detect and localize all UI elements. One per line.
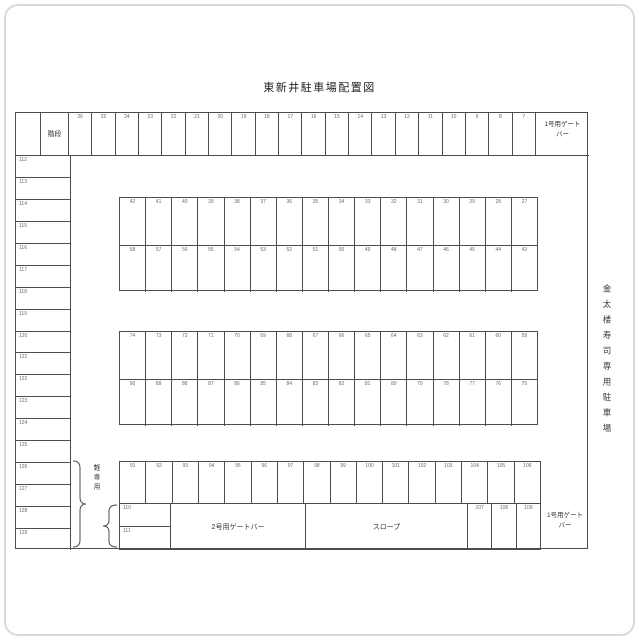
parking-space: 18 — [256, 113, 279, 155]
space-number: 75 — [522, 380, 528, 387]
parking-lot-diagram: 階段 2625242322212019181716151413121110987… — [15, 112, 588, 549]
parking-space: 33 — [355, 198, 381, 245]
parking-space: 38 — [225, 198, 251, 245]
parking-space: 127 — [16, 485, 70, 507]
parking-space: 88 — [172, 380, 198, 426]
parking-space: 47 — [407, 246, 433, 292]
parking-space: 36 — [277, 198, 303, 245]
parking-space: 93 — [173, 462, 199, 503]
parking-space: 24 — [116, 113, 139, 155]
parking-space: 37 — [251, 198, 277, 245]
gate-side-spaces: 107108109 — [468, 504, 541, 550]
parking-space: 10 — [443, 113, 466, 155]
parking-space: 29 — [460, 198, 486, 245]
space-number: 52 — [287, 246, 293, 253]
space-number: 113 — [16, 178, 27, 185]
parking-block-1: 42414039383736353433323130292827 5857565… — [119, 197, 538, 291]
parking-space: 103 — [436, 462, 462, 503]
space-number: 86 — [234, 380, 240, 387]
space-number: 127 — [16, 485, 27, 492]
space-number: 107 — [475, 504, 483, 511]
space-number: 77 — [469, 380, 475, 387]
parking-space: 9 — [466, 113, 489, 155]
parking-space: 76 — [486, 380, 512, 426]
space-number: 120 — [16, 332, 27, 339]
parking-space: 28 — [486, 198, 512, 245]
space-number: 124 — [16, 419, 27, 426]
parking-space: 80 — [381, 380, 407, 426]
space-number: 17 — [287, 113, 293, 120]
parking-space: 17 — [279, 113, 302, 155]
space-number: 61 — [469, 332, 475, 339]
space-number: 72 — [182, 332, 188, 339]
space-number: 10 — [451, 113, 457, 120]
parking-space: 86 — [225, 380, 251, 426]
parking-space: 55 — [198, 246, 224, 292]
parking-space: 122 — [16, 375, 70, 397]
space-number: 81 — [365, 380, 371, 387]
parking-space: 109 — [517, 504, 540, 549]
space-number: 59 — [522, 332, 528, 339]
parking-space: 78 — [434, 380, 460, 426]
parking-space: 129 — [16, 529, 70, 550]
parking-space: 70 — [225, 332, 251, 379]
space-number: 65 — [365, 332, 371, 339]
space-number: 45 — [469, 246, 475, 253]
page-title: 東新井駐車場配置図 — [0, 79, 639, 95]
gate2-cell: 2号用ゲートバー — [171, 504, 306, 550]
space-number: 114 — [16, 200, 27, 207]
parking-space: 64 — [381, 332, 407, 379]
space-number: 58 — [130, 246, 136, 253]
space-number: 42 — [130, 198, 136, 205]
space-number: 68 — [287, 332, 293, 339]
gate1-label-line1: 1号用ゲート — [544, 120, 580, 130]
space-number: 26 — [77, 113, 83, 120]
space-number: 16 — [311, 113, 317, 120]
parking-space: 54 — [225, 246, 251, 292]
parking-space: 71 — [198, 332, 224, 379]
parking-space: 32 — [381, 198, 407, 245]
parking-space: 125 — [16, 441, 70, 463]
space-number: 103 — [444, 462, 452, 469]
space-number: 116 — [16, 244, 27, 251]
parking-space: 119 — [16, 310, 70, 332]
parking-space: 39 — [198, 198, 224, 245]
space-number: 15 — [334, 113, 340, 120]
parking-space: 100 — [357, 462, 383, 503]
parking-space: 90 — [120, 380, 146, 426]
parking-space: 107 — [468, 504, 492, 549]
parking-space: 62 — [434, 332, 460, 379]
space-number: 12 — [404, 113, 410, 120]
parking-space: 11 — [419, 113, 442, 155]
space-number: 43 — [522, 246, 528, 253]
gate1-bottom-cell: 1号用ゲート バー — [541, 504, 589, 550]
parking-space: 56 — [172, 246, 198, 292]
space-number: 11 — [428, 113, 433, 120]
side-note: 金太楼寿司専用駐車場 — [601, 284, 613, 439]
parking-space: 96 — [252, 462, 278, 503]
space-number: 51 — [313, 246, 319, 253]
space-number: 30 — [443, 198, 449, 205]
parking-space: 97 — [278, 462, 304, 503]
space-number: 46 — [443, 246, 449, 253]
space-number: 110 — [120, 504, 131, 511]
gate1-label-line2: バー — [556, 130, 569, 140]
space-number: 105 — [497, 462, 505, 469]
space-number: 28 — [496, 198, 502, 205]
slope-cell: スロープ — [306, 504, 468, 550]
top-row-spaces: 2625242322212019181716151413121110987 — [69, 113, 536, 155]
parking-space: 121 — [16, 353, 70, 375]
space-number: 54 — [234, 246, 240, 253]
space-number: 83 — [313, 380, 319, 387]
space-number: 62 — [443, 332, 449, 339]
space-number: 33 — [365, 198, 371, 205]
parking-space: 16 — [302, 113, 325, 155]
space-number: 14 — [358, 113, 364, 120]
parking-space: 123 — [16, 397, 70, 419]
parking-space: 51 — [303, 246, 329, 292]
parking-space: 46 — [434, 246, 460, 292]
space-number: 64 — [391, 332, 397, 339]
space-number: 100 — [365, 462, 373, 469]
kei-group-bracket-left-column — [71, 459, 89, 549]
space-number: 104 — [471, 462, 479, 469]
space-number: 89 — [156, 380, 162, 387]
space-number: 112 — [16, 156, 27, 163]
space-number: 19 — [241, 113, 247, 120]
space-number: 76 — [496, 380, 502, 387]
parking-space: 102 — [409, 462, 435, 503]
space-number: 50 — [339, 246, 345, 253]
space-number: 79 — [417, 380, 423, 387]
parking-space: 115 — [16, 222, 70, 244]
parking-space: 117 — [16, 266, 70, 288]
parking-space: 89 — [146, 380, 172, 426]
space-number: 66 — [339, 332, 345, 339]
space-number: 69 — [260, 332, 266, 339]
space-number: 22 — [171, 113, 177, 120]
space-number: 88 — [182, 380, 188, 387]
parking-space: 35 — [303, 198, 329, 245]
space-number: 34 — [339, 198, 345, 205]
space-number: 73 — [156, 332, 162, 339]
space-number: 44 — [496, 246, 502, 253]
space-number: 29 — [469, 198, 475, 205]
space-number: 85 — [260, 380, 266, 387]
parking-space: 118 — [16, 288, 70, 310]
parking-space: 21 — [186, 113, 209, 155]
space-number: 57 — [156, 246, 162, 253]
parking-space: 48 — [381, 246, 407, 292]
space-number: 74 — [130, 332, 136, 339]
space-number: 9 — [476, 113, 479, 120]
parking-space: 106 — [515, 462, 540, 503]
space-number: 99 — [340, 462, 346, 469]
space-number: 13 — [381, 113, 387, 120]
parking-space: 69 — [251, 332, 277, 379]
space-number: 71 — [208, 332, 214, 339]
space-number: 93 — [183, 462, 189, 469]
gate1-label-line1: 1号用ゲート — [547, 511, 583, 521]
parking-space: 74 — [120, 332, 146, 379]
parking-space: 92 — [146, 462, 172, 503]
parking-space: 66 — [329, 332, 355, 379]
top-corner-cell — [16, 113, 41, 155]
parking-space: 30 — [434, 198, 460, 245]
space-number: 18 — [264, 113, 270, 120]
parking-space: 34 — [329, 198, 355, 245]
gate2-label: 2号用ゲートバー — [212, 522, 265, 532]
space-number: 27 — [522, 198, 528, 205]
parking-space: 94 — [199, 462, 225, 503]
parking-space: 98 — [304, 462, 330, 503]
space-number: 24 — [124, 113, 130, 120]
parking-space: 20 — [209, 113, 232, 155]
space-number: 60 — [496, 332, 502, 339]
space-number: 84 — [287, 380, 293, 387]
space-number: 25 — [101, 113, 107, 120]
space-number: 21 — [194, 113, 200, 120]
kei-only-label: 軽専用 — [90, 464, 100, 493]
space-number: 80 — [391, 380, 397, 387]
block1-row2: 58575655545352515049484746454443 — [120, 246, 537, 292]
space-number: 109 — [524, 504, 532, 511]
parking-space: 110 — [120, 504, 170, 527]
space-number: 121 — [16, 353, 27, 360]
space-number: 67 — [313, 332, 319, 339]
space-number: 78 — [443, 380, 449, 387]
space-number: 122 — [16, 375, 27, 382]
space-number: 96 — [261, 462, 267, 469]
space-number: 37 — [260, 198, 266, 205]
space-number: 40 — [182, 198, 188, 205]
space-number: 36 — [287, 198, 293, 205]
stairs-label: 階段 — [48, 129, 62, 139]
space-number: 129 — [16, 529, 27, 536]
parking-space: 77 — [460, 380, 486, 426]
parking-space: 23 — [139, 113, 162, 155]
parking-space: 75 — [512, 380, 537, 426]
parking-space: 105 — [488, 462, 514, 503]
space-number: 32 — [391, 198, 397, 205]
parking-space: 31 — [407, 198, 433, 245]
parking-space: 50 — [329, 246, 355, 292]
space-number: 123 — [16, 397, 27, 404]
parking-space: 68 — [277, 332, 303, 379]
space-number: 31 — [417, 198, 423, 205]
parking-space: 41 — [146, 198, 172, 245]
parking-space: 82 — [329, 380, 355, 426]
parking-space: 126 — [16, 463, 70, 485]
space-number: 98 — [314, 462, 320, 469]
parking-space: 128 — [16, 507, 70, 529]
space-number: 70 — [234, 332, 240, 339]
parking-space: 13 — [372, 113, 395, 155]
space-number: 35 — [313, 198, 319, 205]
space-number: 111 — [120, 527, 131, 534]
parking-space: 22 — [162, 113, 185, 155]
space-number: 55 — [208, 246, 214, 253]
space-number: 38 — [234, 198, 240, 205]
parking-space: 108 — [492, 504, 516, 549]
parking-space: 25 — [92, 113, 115, 155]
parking-space: 45 — [460, 246, 486, 292]
parking-space: 79 — [407, 380, 433, 426]
space-number: 53 — [260, 246, 266, 253]
space-number: 97 — [288, 462, 294, 469]
space-number: 23 — [147, 113, 153, 120]
space-number: 41 — [156, 198, 162, 205]
parking-space: 44 — [486, 246, 512, 292]
space-number: 95 — [235, 462, 241, 469]
parking-space: 120 — [16, 332, 70, 354]
parking-space: 114 — [16, 200, 70, 222]
parking-space: 61 — [460, 332, 486, 379]
slope-label: スロープ — [373, 522, 401, 532]
space-number: 118 — [16, 288, 27, 295]
parking-space: 52 — [277, 246, 303, 292]
space-number: 106 — [523, 462, 531, 469]
parking-space: 15 — [326, 113, 349, 155]
space-number: 82 — [339, 380, 345, 387]
parking-space: 83 — [303, 380, 329, 426]
block1-row1: 42414039383736353433323130292827 — [120, 198, 537, 246]
parking-space: 14 — [349, 113, 372, 155]
parking-space: 84 — [277, 380, 303, 426]
parking-space: 42 — [120, 198, 146, 245]
space-number: 108 — [500, 504, 508, 511]
parking-space: 85 — [251, 380, 277, 426]
space-number: 49 — [365, 246, 371, 253]
space-number: 128 — [16, 507, 27, 514]
parking-space: 65 — [355, 332, 381, 379]
parking-space: 63 — [407, 332, 433, 379]
gate1-top-cell: 1号用ゲート バー — [536, 113, 589, 155]
parking-space: 116 — [16, 244, 70, 266]
space-number: 63 — [417, 332, 423, 339]
block2-row1: 74737271706968676665646362616059 — [120, 332, 537, 380]
space-number: 8 — [499, 113, 502, 120]
space-number: 90 — [130, 380, 136, 387]
parking-space: 57 — [146, 246, 172, 292]
parking-space: 27 — [512, 198, 537, 245]
kei-group-bracket-small-column — [101, 503, 119, 549]
parking-space: 124 — [16, 419, 70, 441]
parking-block-2: 74737271706968676665646362616059 9089888… — [119, 331, 538, 425]
space-number: 39 — [208, 198, 214, 205]
parking-space: 59 — [512, 332, 537, 379]
space-number: 48 — [391, 246, 397, 253]
parking-space: 49 — [355, 246, 381, 292]
parking-space: 43 — [512, 246, 537, 292]
parking-space: 113 — [16, 178, 70, 200]
small-column-spaces: 110111 — [119, 504, 171, 550]
parking-space: 112 — [16, 156, 70, 178]
parking-space: 19 — [232, 113, 255, 155]
left-column-spaces: 1121131141151161171181191201211221231241… — [16, 156, 71, 550]
space-number: 87 — [208, 380, 214, 387]
parking-space: 95 — [225, 462, 251, 503]
space-number: 119 — [16, 310, 27, 317]
parking-space: 8 — [489, 113, 512, 155]
block2-row2: 90898887868584838281807978777675 — [120, 380, 537, 426]
bottom-row-spaces: 919293949596979899100101102103104105106 — [119, 461, 541, 504]
parking-space: 87 — [198, 380, 224, 426]
space-number: 47 — [417, 246, 423, 253]
parking-space: 60 — [486, 332, 512, 379]
space-number: 92 — [156, 462, 162, 469]
space-number: 20 — [217, 113, 223, 120]
parking-space: 26 — [69, 113, 92, 155]
space-number: 126 — [16, 463, 27, 470]
space-number: 115 — [16, 222, 27, 229]
parking-space: 40 — [172, 198, 198, 245]
space-number: 102 — [418, 462, 426, 469]
space-number: 56 — [182, 246, 188, 253]
parking-space: 7 — [513, 113, 535, 155]
parking-space: 81 — [355, 380, 381, 426]
space-number: 94 — [209, 462, 215, 469]
parking-space: 99 — [331, 462, 357, 503]
stairs-cell: 階段 — [41, 113, 69, 155]
parking-space: 101 — [383, 462, 409, 503]
top-row: 階段 2625242322212019181716151413121110987… — [16, 113, 589, 156]
space-number: 125 — [16, 441, 27, 448]
parking-space: 73 — [146, 332, 172, 379]
parking-space: 91 — [120, 462, 146, 503]
space-number: 91 — [130, 462, 136, 469]
parking-space: 53 — [251, 246, 277, 292]
gate1-label-line2: バー — [559, 521, 572, 531]
space-number: 117 — [16, 266, 27, 273]
parking-space: 58 — [120, 246, 146, 292]
parking-space: 104 — [462, 462, 488, 503]
parking-space: 12 — [396, 113, 419, 155]
space-number: 7 — [522, 113, 525, 120]
parking-space: 111 — [120, 527, 170, 549]
space-number: 101 — [392, 462, 400, 469]
parking-space: 67 — [303, 332, 329, 379]
parking-space: 72 — [172, 332, 198, 379]
